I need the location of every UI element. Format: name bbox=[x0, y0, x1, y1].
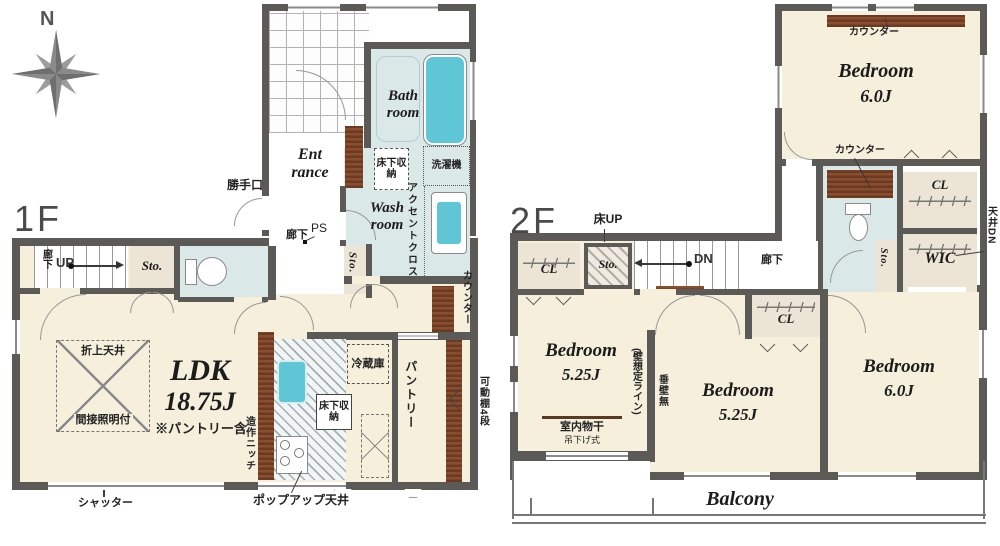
window bbox=[510, 336, 518, 366]
burner bbox=[280, 456, 290, 466]
balcony-edge bbox=[983, 461, 985, 519]
balcony-label: Balcony bbox=[640, 488, 840, 510]
toilet-bowl-2f bbox=[849, 214, 868, 241]
window bbox=[510, 382, 518, 412]
washing-machine-box: 洗濯機 bbox=[423, 146, 470, 186]
window bbox=[470, 62, 477, 120]
ldk-label: LDK bbox=[135, 354, 265, 388]
niche-label: 造作ニッチ bbox=[243, 416, 255, 480]
door-opening bbox=[640, 289, 676, 295]
storage-side-label: Sto. bbox=[878, 248, 889, 288]
window bbox=[838, 472, 916, 480]
dn-label: DN bbox=[694, 252, 726, 267]
coffered-label-text: 折上天井 bbox=[79, 345, 127, 357]
ceiling-dn-label: 天井DN bbox=[985, 206, 997, 260]
wall bbox=[745, 289, 752, 339]
bedroom-north-label: Bedroom 6.0J bbox=[800, 60, 952, 107]
entrance-label-line2: rance bbox=[272, 164, 348, 182]
hanging-label: 吊下げ式 bbox=[540, 435, 624, 445]
closet-xbox bbox=[361, 414, 389, 478]
counter-1f bbox=[432, 286, 454, 332]
back-door-label: 勝手口 bbox=[218, 179, 272, 193]
burner bbox=[280, 440, 290, 450]
window-tick bbox=[103, 490, 105, 497]
floor-up-label: 床UP bbox=[582, 213, 634, 227]
bedroom-left-name: Bedroom bbox=[518, 340, 644, 361]
window bbox=[366, 4, 438, 11]
entrance-label: Ent rance bbox=[272, 146, 348, 182]
storage-small-label: Sto. bbox=[346, 252, 358, 292]
bathroom-label-line2: room bbox=[372, 105, 434, 122]
door-opening bbox=[234, 297, 262, 302]
vent-mark bbox=[404, 489, 422, 498]
window bbox=[12, 320, 20, 354]
bedroom-right-label: Bedroom 6.0J bbox=[826, 356, 972, 400]
bedroom-mid-name: Bedroom bbox=[660, 380, 816, 401]
balcony-rail bbox=[512, 514, 986, 524]
bedroom-north-size: 6.0J bbox=[800, 86, 952, 106]
wic-label: WIC bbox=[903, 250, 977, 268]
window bbox=[684, 472, 770, 480]
fridge-box: 冷蔵庫 bbox=[347, 344, 389, 384]
toilet-tank bbox=[185, 259, 197, 285]
counter-top-label: カウンター bbox=[842, 27, 906, 39]
bedroom-mid-label: Bedroom 5.25J bbox=[660, 380, 816, 424]
door-arc bbox=[234, 198, 262, 226]
wall bbox=[268, 246, 276, 300]
washbasin-sink bbox=[437, 202, 461, 244]
underfloor-storage-box-2: 床下収納 bbox=[316, 394, 352, 430]
bedroom-north-name: Bedroom bbox=[800, 60, 952, 82]
wic-opening bbox=[908, 287, 966, 292]
wall bbox=[364, 42, 371, 152]
counter-mid-label: カウンター bbox=[828, 145, 892, 157]
window bbox=[258, 482, 346, 490]
compass-icon bbox=[8, 26, 104, 122]
toilet-bowl bbox=[197, 257, 227, 286]
entrance-label-line1: Ent bbox=[272, 146, 348, 164]
drying-label: 室内物干 bbox=[540, 421, 624, 434]
balcony-post bbox=[530, 498, 532, 516]
wall-assumed bbox=[647, 330, 655, 462]
window bbox=[832, 4, 868, 11]
counter-1f-label: カウンター bbox=[460, 270, 472, 338]
kitchen-sink bbox=[277, 360, 307, 404]
stair-dn-head bbox=[634, 259, 642, 267]
wall-line-label: (壁想定ライン) bbox=[630, 348, 642, 452]
counter-top-strip bbox=[827, 15, 965, 27]
storage-label: Sto. bbox=[130, 259, 174, 274]
closet-rail bbox=[909, 196, 971, 206]
closet-left-label: CL bbox=[518, 262, 580, 277]
closet-north-label: CL bbox=[903, 178, 977, 193]
balcony-edge bbox=[512, 461, 514, 519]
f2-corridor bbox=[740, 241, 818, 293]
corridor-v-label: 廊下 bbox=[40, 249, 52, 279]
back-door-opening bbox=[262, 196, 269, 230]
bedroom-left-size: 5.25J bbox=[518, 365, 644, 384]
floor-1f-label: 1F bbox=[14, 198, 62, 240]
corridor-opening bbox=[782, 233, 816, 242]
storage-hatched-label: Sto. bbox=[584, 258, 632, 271]
toilet-counter-slats bbox=[827, 170, 893, 198]
stair-dn-dot bbox=[686, 261, 692, 267]
drying-bar bbox=[542, 416, 622, 419]
bathroom-label: Bath room bbox=[372, 88, 434, 122]
accent-cloth-label: アクセントクロス bbox=[405, 182, 417, 290]
window bbox=[775, 66, 782, 108]
floor-up-leader bbox=[604, 229, 605, 242]
popup-label: ポップアップ天井 bbox=[234, 494, 368, 508]
window bbox=[980, 55, 987, 113]
stair-dn-line bbox=[642, 263, 686, 265]
pantry-shelf bbox=[446, 340, 462, 482]
window bbox=[546, 452, 628, 460]
wall bbox=[364, 42, 470, 49]
wall bbox=[392, 332, 398, 482]
bedroom-right-name: Bedroom bbox=[826, 356, 972, 377]
shutter-window bbox=[48, 482, 224, 490]
window bbox=[288, 4, 340, 11]
pantry-sliding-door bbox=[398, 333, 438, 339]
underfloor-storage-box: 床下収納 bbox=[374, 148, 409, 190]
bedroom-right-size: 6.0J bbox=[826, 381, 972, 400]
coffered-label: 折上天井 bbox=[56, 345, 150, 358]
floor-plan: N 1F 床下収納 洗濯機 bbox=[0, 0, 1000, 546]
closet-mid-label: CL bbox=[752, 312, 820, 327]
up-label: UP bbox=[52, 256, 78, 271]
door-opening bbox=[40, 288, 80, 294]
ps-label: PS bbox=[306, 222, 332, 236]
indirect-label-text: 間接照明付 bbox=[74, 414, 133, 426]
ldk-size-label: 18.75J bbox=[130, 387, 270, 416]
shutter-label: シャッター bbox=[58, 497, 153, 510]
stair-arrow-head bbox=[116, 261, 124, 269]
window bbox=[876, 4, 914, 11]
burner bbox=[294, 448, 304, 458]
door-opening bbox=[786, 159, 812, 166]
indirect-label: 間接照明付 bbox=[56, 414, 150, 427]
bathroom-label-line1: Bath bbox=[372, 88, 434, 105]
window bbox=[979, 330, 987, 378]
bedroom-mid-size: 5.25J bbox=[660, 405, 816, 424]
corridor-2f-label: 廊下 bbox=[752, 254, 792, 267]
pantry-label: パントリー bbox=[403, 360, 417, 444]
bedroom-left-label: Bedroom 5.25J bbox=[518, 340, 644, 384]
stair-arrow-line bbox=[74, 265, 116, 267]
shelf-label: 可動棚4段 bbox=[477, 376, 489, 442]
